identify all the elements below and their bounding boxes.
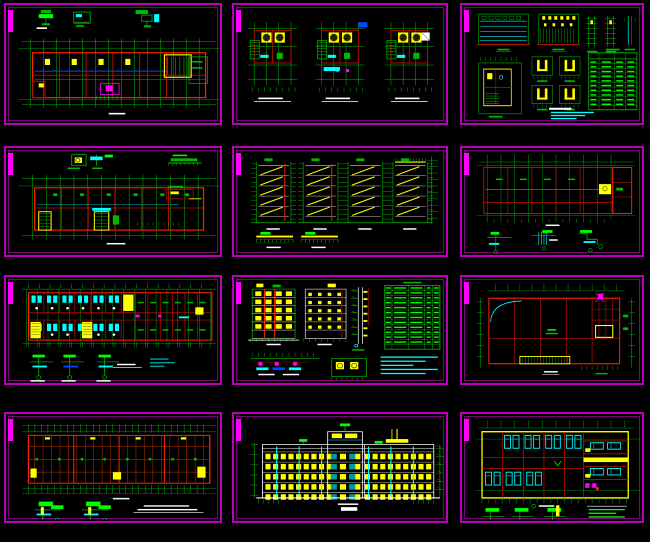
sheet-corner-tab	[8, 10, 13, 32]
sheet-corner-tab	[236, 282, 241, 304]
sheet-thumbnail-side-elevations-and-schedule-sheet[interactable]	[232, 275, 448, 385]
long-plan-drawing	[14, 8, 220, 122]
elevation-sheet-drawing	[470, 8, 642, 122]
sheet-thumbnail-garage-floor-plan-sheet[interactable]	[460, 412, 644, 523]
sheet-corner-tab	[8, 419, 13, 441]
roof-plan-drawing	[470, 280, 642, 382]
parking-plan-drawing	[470, 417, 642, 520]
sheet-thumbnail-stair-sections-sheet[interactable]	[232, 146, 448, 257]
sheet-thumbnail-dormitory-floor-plan-sheet[interactable]	[4, 275, 222, 385]
cad-thumbnail-grid	[0, 0, 650, 542]
struct-plan-drawing	[14, 417, 220, 520]
sheet-thumbnail-unit-detail-plans-sheet[interactable]	[232, 3, 448, 125]
sheet-thumbnail-roof-plan-sheet[interactable]	[460, 275, 644, 385]
sheet-corner-tab	[464, 153, 469, 175]
sheet-thumbnail-floor-plan-with-details-sheet[interactable]	[460, 146, 644, 257]
sheet-thumbnail-structural-floor-plan-sheet[interactable]	[4, 412, 222, 523]
sheet-corner-tab	[464, 419, 469, 441]
dorm-plan-drawing	[14, 280, 220, 382]
sheet-thumbnail-floor-plan-sheet-2[interactable]	[4, 146, 222, 257]
sheet-corner-tab	[464, 10, 469, 32]
unit-plans-drawing	[242, 8, 446, 122]
sheet-thumbnail-floor-plan-sheet-1[interactable]	[4, 3, 222, 125]
sheet-corner-tab	[8, 153, 13, 175]
long-plan-2-drawing	[14, 151, 220, 254]
sheet-corner-tab	[236, 153, 241, 175]
stair-sections-drawing	[242, 151, 446, 254]
sheet-thumbnail-front-elevation-sheet[interactable]	[232, 412, 448, 523]
elevation-sheet-2-drawing	[242, 280, 446, 382]
sheet-corner-tab	[8, 282, 13, 304]
sheet-corner-tab	[236, 419, 241, 441]
sheet-thumbnail-elevations-details-schedule-sheet[interactable]	[460, 3, 644, 125]
plan-details-drawing	[470, 151, 642, 254]
front-elevation-drawing	[242, 417, 446, 520]
sheet-corner-tab	[464, 282, 469, 304]
sheet-corner-tab	[236, 10, 241, 32]
